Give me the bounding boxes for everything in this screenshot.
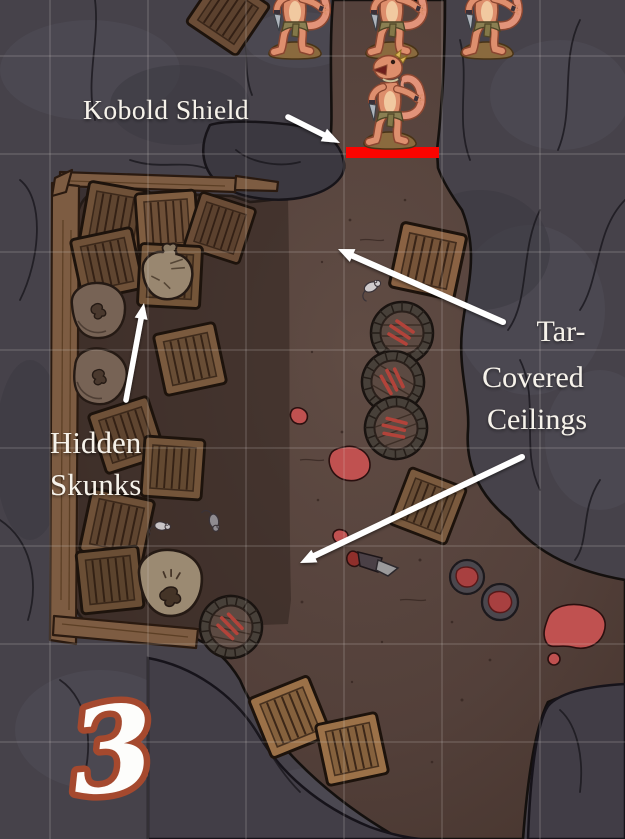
battle-map[interactable]: Kobold Shield Hidden Skunks Tar- Covered…: [0, 0, 625, 839]
tar-ceilings-label-line3: Ceilings: [487, 403, 587, 436]
sack: [72, 283, 125, 338]
crate: [76, 546, 144, 614]
kobold-shield-label: Kobold Shield: [83, 94, 249, 125]
battle-map-viewport[interactable]: Kobold Shield Hidden Skunks Tar- Covered…: [0, 0, 625, 839]
crate: [153, 322, 227, 396]
tar-ceilings-label-line1: Tar-: [537, 315, 586, 348]
hidden-skunks-label-line2: Skunks: [50, 467, 141, 502]
blood-bowl: [450, 560, 484, 594]
crate: [315, 712, 389, 786]
blood-bowl: [482, 584, 518, 620]
tar-ceilings-label-line2: Covered: [482, 361, 584, 394]
map-number: 3: [65, 677, 159, 823]
crate: [141, 436, 205, 500]
hidden-skunks-label-line1: Hidden: [50, 425, 142, 460]
